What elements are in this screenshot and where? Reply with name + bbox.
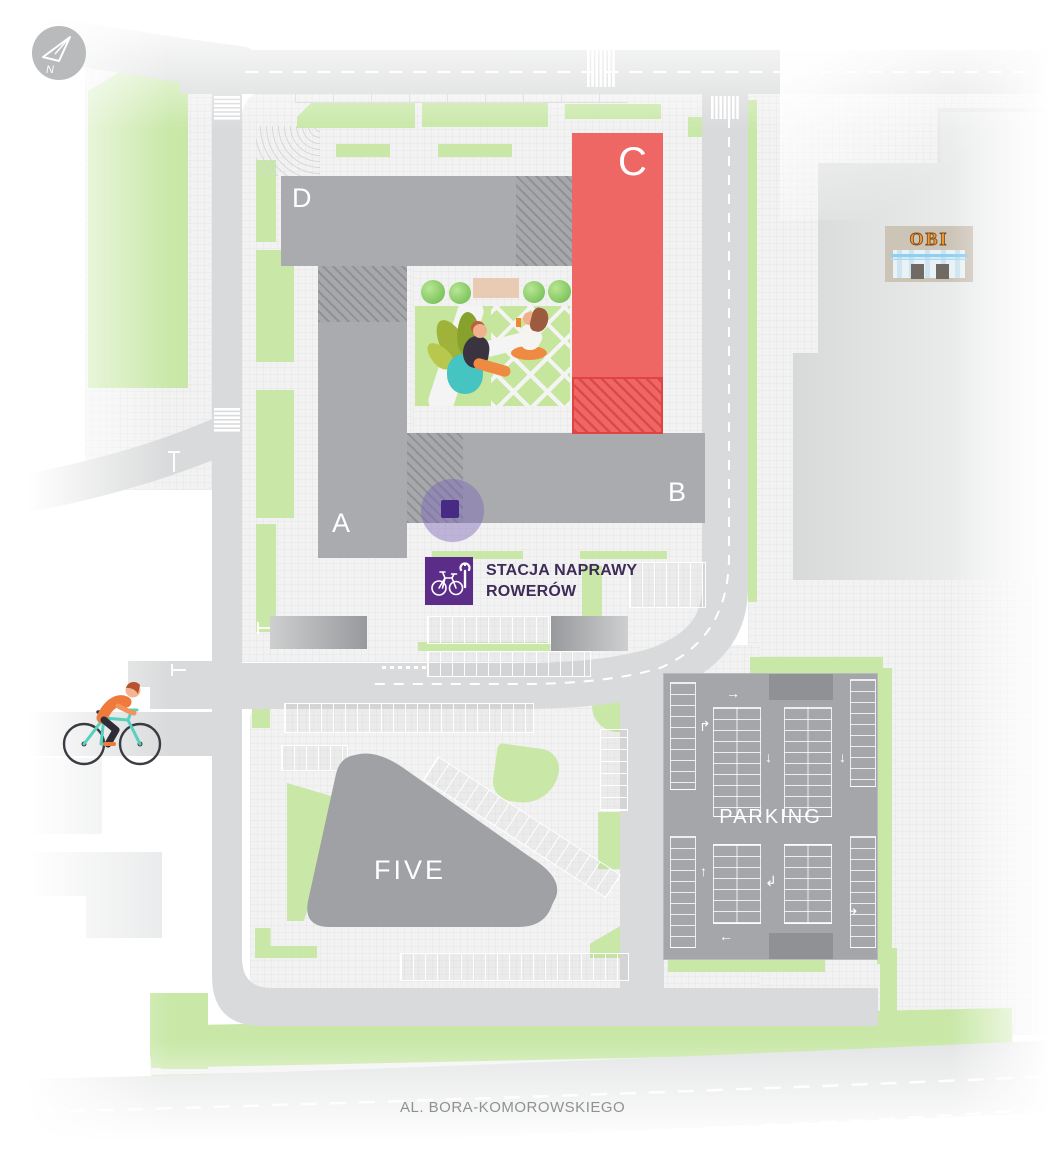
compass-north-label: N <box>46 64 54 76</box>
site-map-canvas: { "map": { "compass": { "label": "N" }, … <box>0 0 1050 1149</box>
traffic-arrow: ↓ <box>839 750 846 764</box>
building-a-hatch <box>318 266 407 322</box>
parking-stalls <box>670 682 696 790</box>
building-c-hatch <box>572 377 663 434</box>
parking-row <box>400 953 629 981</box>
traffic-arrow: ↓ <box>765 750 772 764</box>
parking-row <box>427 651 591 677</box>
compass-icon: N <box>30 24 88 82</box>
building-d <box>281 176 516 266</box>
tree-icon <box>548 280 571 303</box>
pergola <box>473 278 519 298</box>
tree-icon <box>523 281 545 303</box>
parking-row <box>427 616 551 644</box>
building-five <box>290 745 620 945</box>
parking-stalls <box>850 679 876 787</box>
paving-cells <box>295 87 627 103</box>
obi-store-icon: OBI <box>885 226 973 282</box>
parking-stalls <box>784 707 832 817</box>
parking-stalls <box>713 707 761 817</box>
parking-stalls <box>850 836 876 948</box>
station-marker <box>441 500 459 518</box>
traffic-arrow: ↲ <box>765 874 777 888</box>
building-b-label: B <box>668 477 687 508</box>
parking-row <box>284 703 534 733</box>
traffic-arrow: ← <box>719 929 733 943</box>
building-d-hatch <box>516 176 572 266</box>
parking-entrance <box>769 933 833 959</box>
bike-station-label-line2: ROWERÓW <box>486 583 576 601</box>
parking-entrance <box>769 674 833 700</box>
traffic-arrow: → <box>726 686 740 700</box>
parking-row <box>629 562 706 608</box>
cyclist-illustration <box>56 668 168 772</box>
courtyard <box>413 266 572 433</box>
building-a-label: A <box>332 508 351 539</box>
obi-logo-text: OBI <box>909 229 948 249</box>
traffic-arrow: ↱ <box>699 719 711 733</box>
terrace-steps <box>256 126 320 176</box>
traffic-arrow: ↑ <box>700 864 707 878</box>
bike-repair-icon <box>425 557 473 605</box>
building-c-label: C <box>618 140 648 185</box>
road-branch-west <box>0 432 230 500</box>
parking-stalls <box>670 836 696 948</box>
bike-station-label-line1: STACJA NAPRAWY <box>486 562 637 580</box>
garage-ramp <box>551 616 628 651</box>
bike-wrench-glyph <box>425 557 473 605</box>
building-d-label: D <box>292 183 313 214</box>
parking-stalls <box>713 844 761 924</box>
building-five-label: FIVE <box>335 855 485 886</box>
person-head <box>473 324 487 338</box>
tree-icon <box>449 282 471 304</box>
traffic-arrow: ↳ <box>847 902 859 916</box>
garage-ramp <box>270 616 367 649</box>
parking-stalls <box>784 844 832 924</box>
parking-lot: → ↱ ↓ ↓ ↑ ↲ ↳ ← PARKING <box>663 673 878 960</box>
parking-label: PARKING <box>664 806 877 829</box>
street-label: AL. BORA-KOMOROWSKIEGO <box>400 1099 625 1116</box>
tree-icon <box>421 280 445 304</box>
drink-cup <box>516 318 521 327</box>
